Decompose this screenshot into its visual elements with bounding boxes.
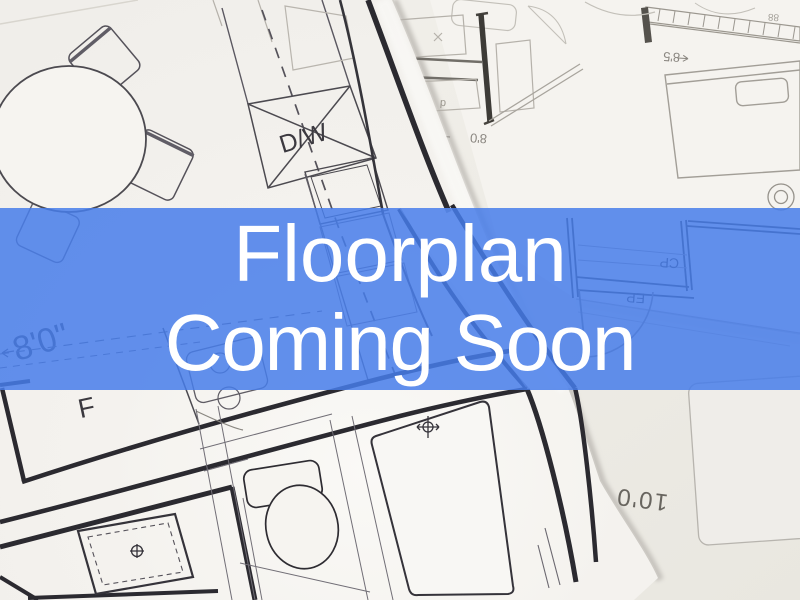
svg-text:Floorplan: Floorplan — [233, 209, 567, 298]
svg-text:d: d — [440, 97, 447, 109]
svg-text:8'0: 8'0 — [470, 130, 488, 146]
svg-text:88: 88 — [767, 11, 779, 23]
svg-text:8'5: 8'5 — [663, 49, 681, 65]
svg-text:Coming Soon: Coming Soon — [165, 298, 635, 387]
